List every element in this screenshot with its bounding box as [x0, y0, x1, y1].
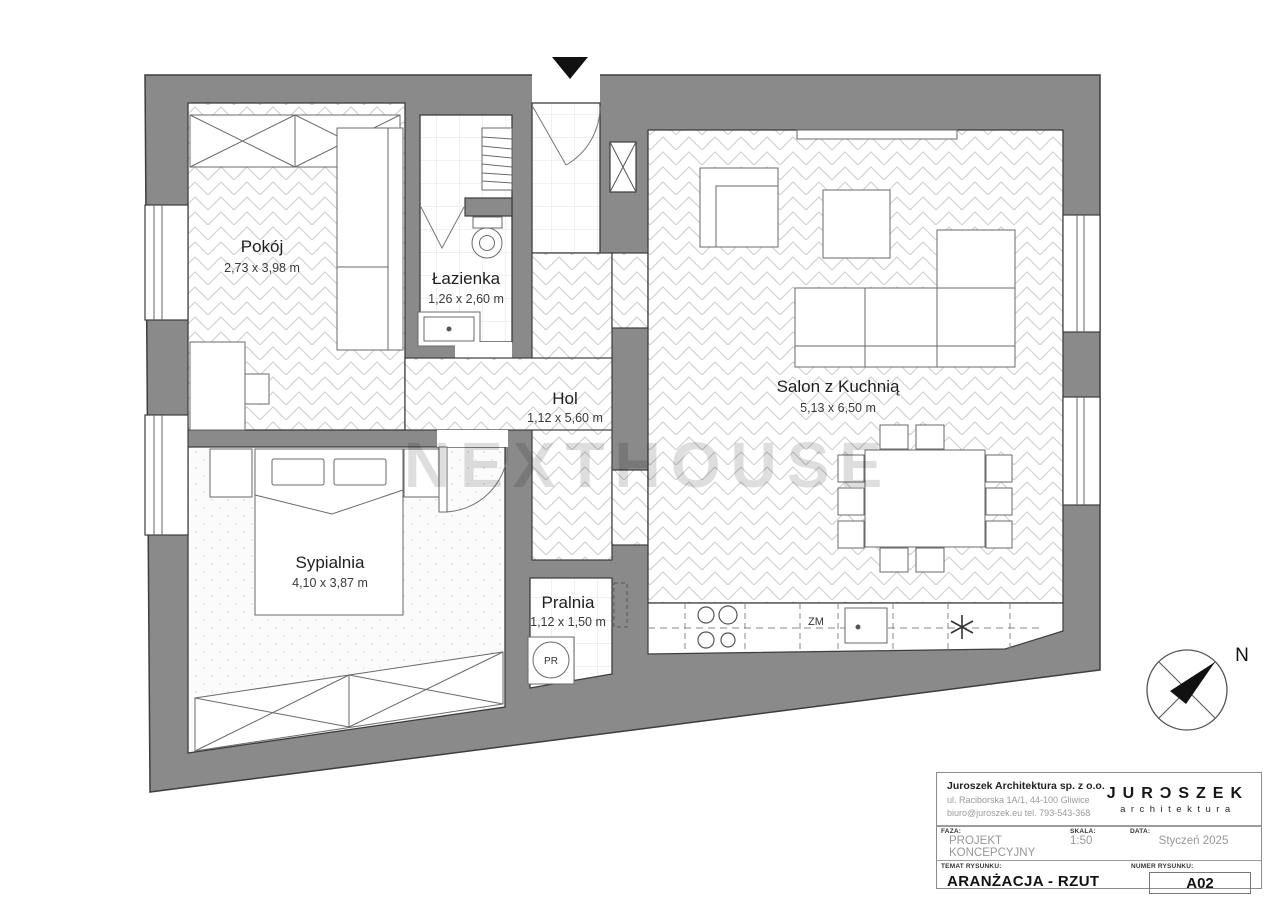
dishwasher-label: ZM	[808, 616, 824, 628]
toilet-icon	[472, 217, 502, 258]
armchair-icon	[700, 168, 778, 247]
faza-value: PROJEKT KONCEPCYJNY	[941, 835, 1062, 859]
company-address: ul. Raciborska 1A/1, 44-100 Gliwice	[947, 794, 1105, 807]
faza-label: FAZA:	[941, 828, 1062, 835]
window-right-upper	[1063, 215, 1100, 332]
north-compass-icon: N	[1147, 645, 1249, 730]
data-label: DATA:	[1130, 828, 1257, 835]
skala-label: SKALA:	[1070, 828, 1122, 835]
logo-subtitle: architektura	[1107, 804, 1249, 815]
numer-field: NUMER RYSUNKU: A02	[1127, 861, 1261, 896]
data-value: Styczeń 2025	[1130, 835, 1257, 847]
north-label: N	[1235, 645, 1249, 666]
sypialnia-dims: 4,10 x 3,87 m	[292, 576, 368, 590]
data-field: DATA: Styczeń 2025	[1126, 827, 1261, 860]
watermark: NEXTHOUSE	[404, 429, 892, 501]
pillow	[334, 459, 386, 485]
faza-field: FAZA: PROJEKT KONCEPCYJNY	[937, 827, 1066, 860]
washer-label: PR	[544, 656, 558, 667]
vestibule-floor	[532, 103, 600, 253]
temat-field: TEMAT RYSUNKU: ARANŻACJA - RZUT	[937, 861, 1127, 896]
salon-name: Salon z Kuchnią	[777, 377, 900, 396]
lazienka-door-opening	[455, 342, 512, 358]
shaft-icon	[610, 142, 636, 192]
skala-field: SKALA: 1:50	[1066, 827, 1126, 860]
drawing-number-box: A02	[1149, 872, 1251, 894]
pokoj-dims: 2,73 x 3,98 m	[224, 261, 300, 275]
juroszek-logo: JURƆSZEK architektura	[1107, 785, 1251, 815]
washer-icon: PR	[528, 637, 574, 684]
tv-console	[797, 130, 957, 139]
salon-dims: 5,13 x 6,50 m	[800, 401, 876, 415]
washbasin-icon	[418, 312, 480, 346]
lazienka-wall-stub	[465, 198, 512, 216]
window-right-lower	[1063, 397, 1100, 505]
pralnia-name: Pralnia	[542, 593, 595, 612]
kitchen-counter: ZM	[648, 603, 1063, 654]
company-name: Juroszek Architektura sp. z o.o.	[947, 780, 1105, 792]
room-pralnia: PR Pralnia 1,12 x 1,50 m	[528, 578, 627, 688]
pokoj-bed	[337, 128, 403, 350]
coffee-table	[823, 190, 890, 258]
floorplan-page: { "watermark": "NEXTHOUSE", "compass": {…	[0, 0, 1280, 910]
lazienka-dims: 1,26 x 2,60 m	[428, 292, 504, 306]
lazienka-name: Łazienka	[432, 269, 501, 288]
sink-icon	[845, 608, 887, 643]
temat-label: TEMAT RYSUNKU:	[941, 863, 1123, 870]
pokoj-name: Pokój	[241, 237, 284, 256]
window-left-pokoj	[145, 205, 188, 320]
pillow	[272, 459, 324, 485]
title-block: Juroszek Architektura sp. z o.o. ul. Rac…	[936, 772, 1262, 889]
pokoj-chair	[245, 374, 269, 404]
pralnia-dims: 1,12 x 1,50 m	[530, 615, 606, 629]
company-contact: biuro@juroszek.eu tel. 793-543-368	[947, 807, 1105, 820]
skala-value: 1:50	[1070, 835, 1122, 847]
title-block-header: Juroszek Architektura sp. z o.o. ul. Rac…	[937, 773, 1261, 825]
logo-brand: JURƆSZEK	[1107, 785, 1249, 803]
company-info: Juroszek Architektura sp. z o.o. ul. Rac…	[947, 780, 1105, 819]
title-block-meta: FAZA: PROJEKT KONCEPCYJNY SKALA: 1:50 DA…	[937, 827, 1261, 861]
numer-label: NUMER RYSUNKU:	[1131, 863, 1257, 870]
room-pokoj: Pokój 2,73 x 3,98 m	[188, 103, 405, 430]
hol-dims: 1,12 x 5,60 m	[527, 411, 603, 425]
passage-upper	[612, 253, 648, 328]
hol-name: Hol	[552, 389, 578, 408]
towel-radiator	[482, 128, 512, 190]
nightstand-left	[210, 449, 252, 497]
window-left-sypialnia	[145, 415, 188, 535]
sypialnia-name: Sypialnia	[296, 553, 366, 572]
title-block-subject: TEMAT RYSUNKU: ARANŻACJA - RZUT NUMER RY…	[937, 861, 1261, 896]
room-salon: Salon z Kuchnią 5,13 x 6,50 m	[648, 130, 1063, 603]
temat-value: ARANŻACJA - RZUT	[941, 873, 1123, 890]
